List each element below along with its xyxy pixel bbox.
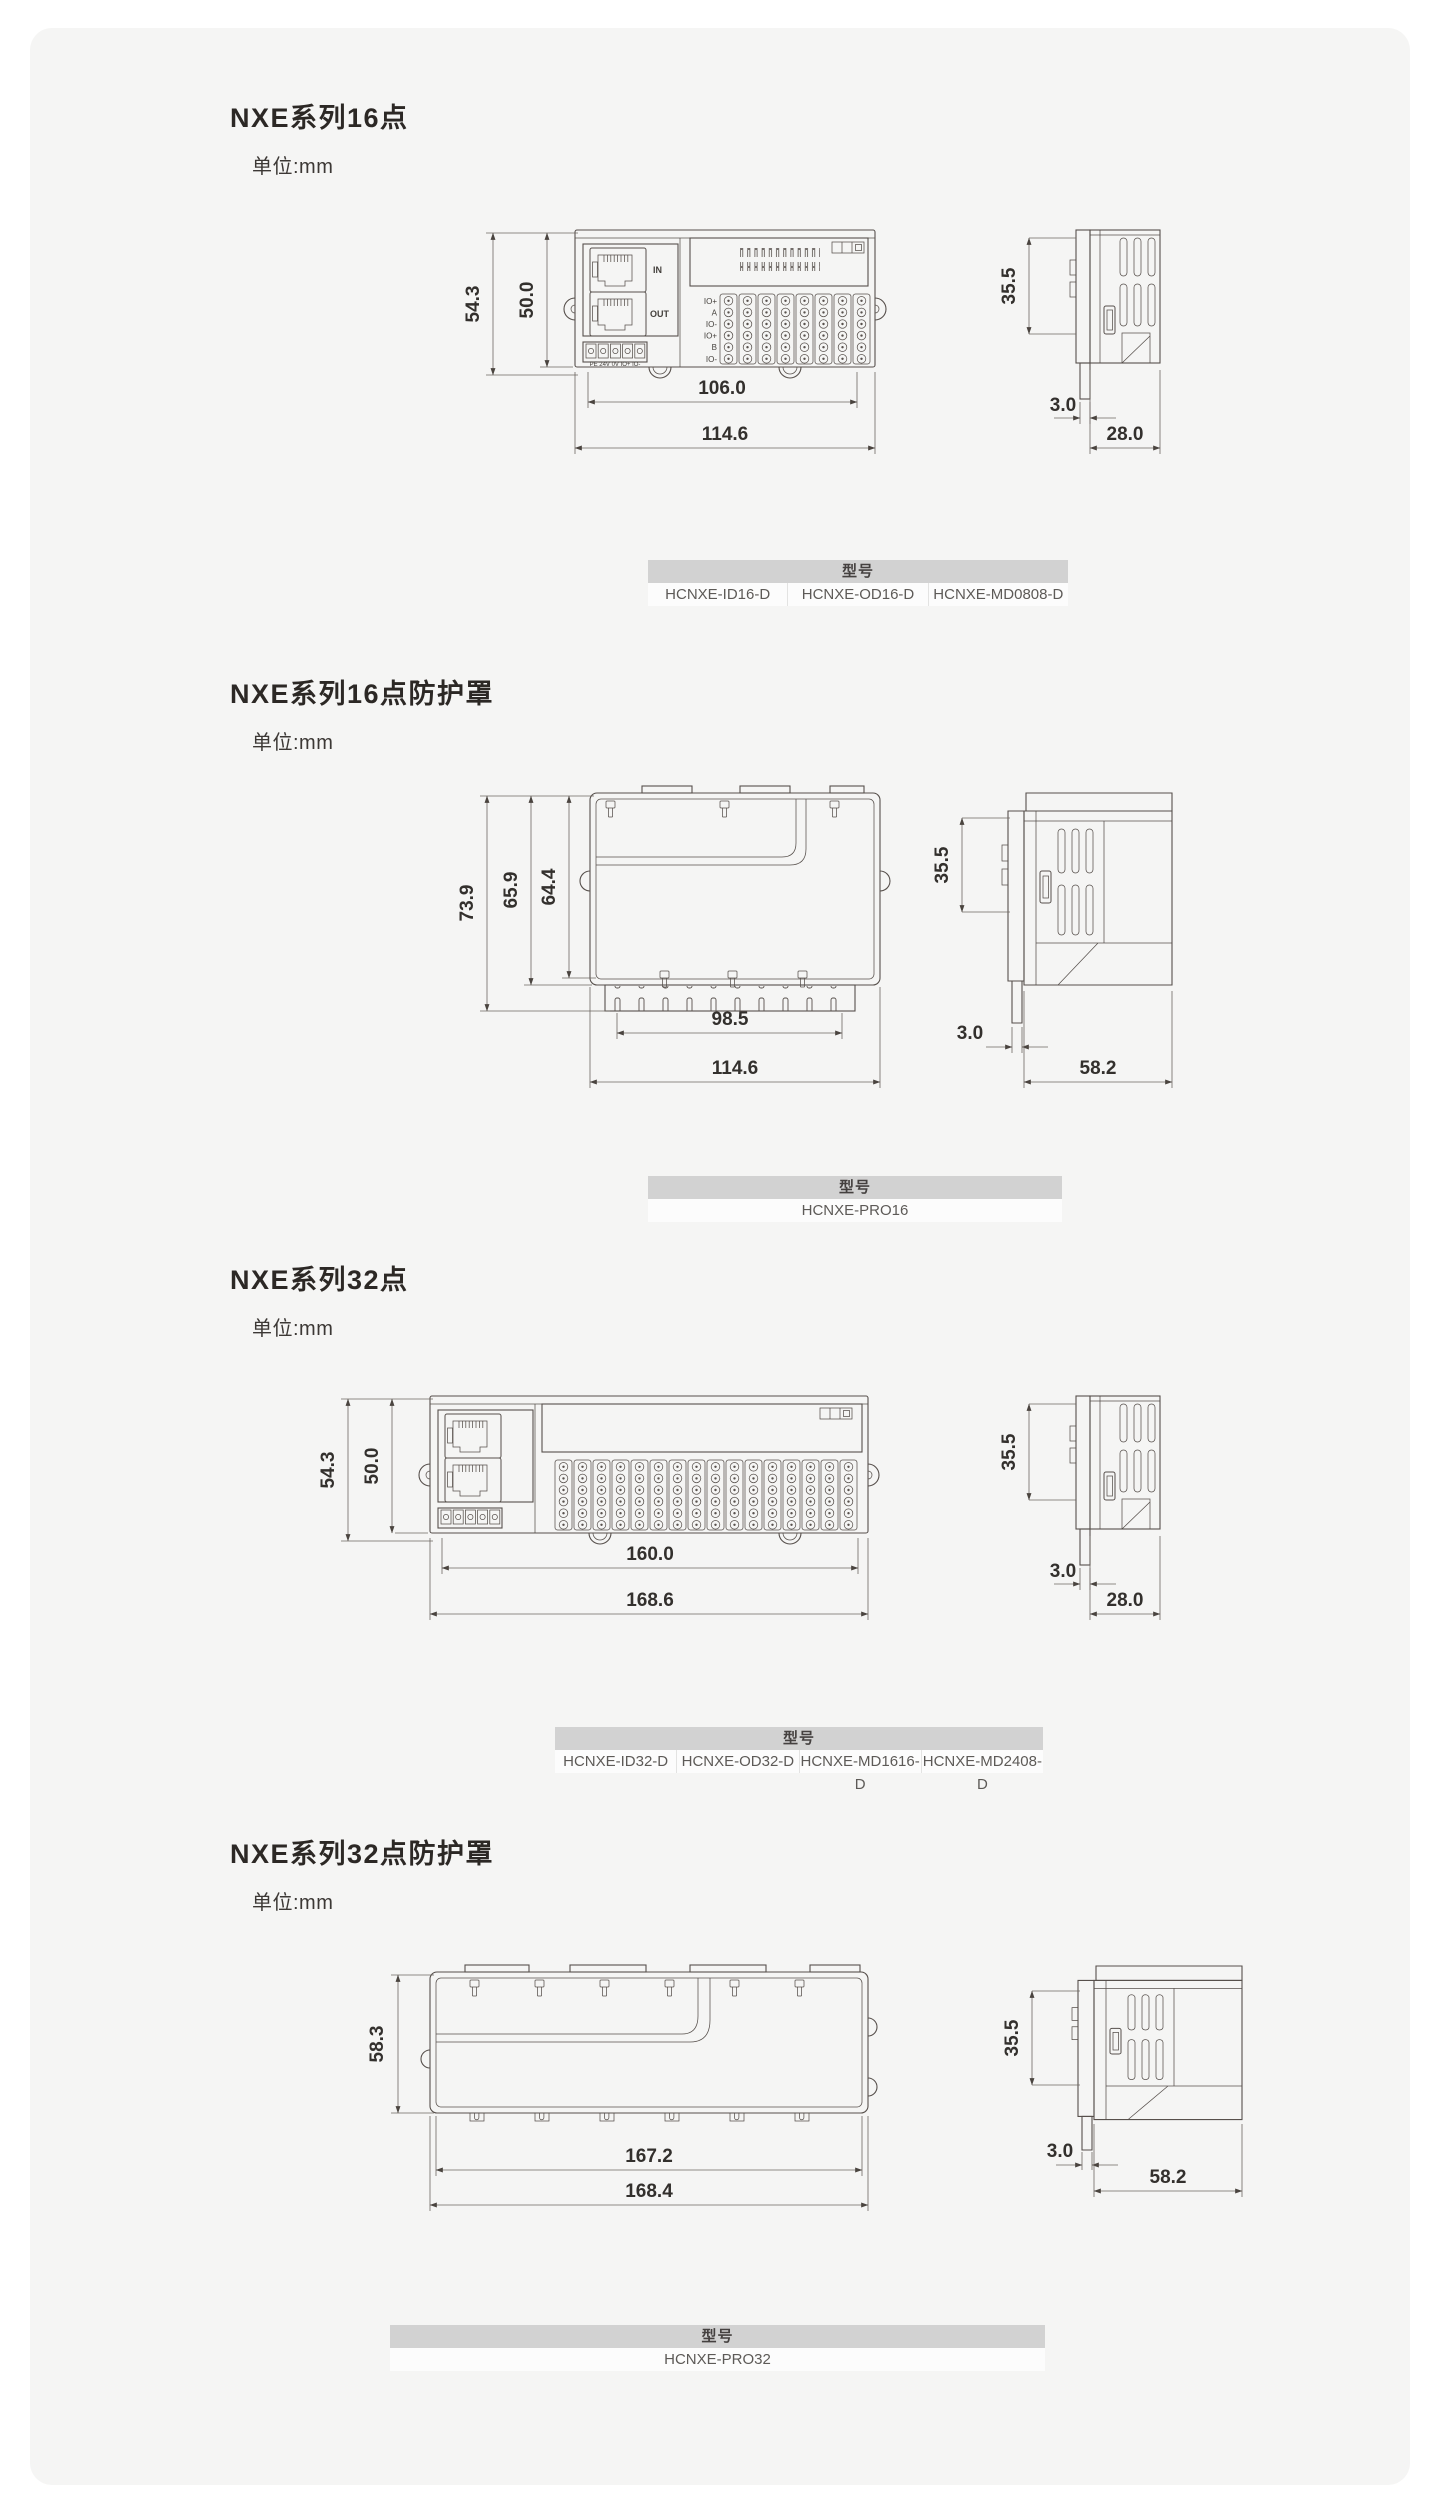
svg-text:IO+: IO+ (704, 297, 717, 306)
section-title-16pt-cover: NXE系列16点防护罩 (230, 672, 494, 711)
unit-label-16pt: 单位:mm (252, 150, 333, 179)
dim-cover-height: 58.3 (367, 2026, 388, 2063)
dimensions-32pt-cover: 58.3 167.2 168.4 35.5 3.0 58.2 (367, 1975, 1242, 2211)
led-row-2 (740, 262, 820, 271)
model-table-32pt: 型号 HCNXE-ID32-D HCNXE-OD32-D HCNXE-MD161… (555, 1727, 1043, 1773)
model-table-32pt-cover: 型号 HCNXE-PRO32 (390, 2325, 1045, 2371)
dim-front-outer-height: 54.3 (463, 286, 484, 323)
model-table-header: 型号 (648, 1176, 1062, 1199)
dim-side-rail-height: 35.5 (932, 846, 953, 883)
dim-side-depth: 28.0 (1107, 1590, 1144, 1611)
dim-cover-mid-height: 65.9 (501, 872, 522, 909)
model-table-16pt-cover: 型号 HCNXE-PRO16 (648, 1176, 1062, 1222)
power-terminal-screws (586, 344, 645, 358)
side-view-16pt-cover (1002, 793, 1172, 1023)
dim-cover-outer-height: 73.9 (457, 885, 478, 922)
port-label-out: OUT (650, 309, 670, 319)
terminal-row-labels: IO+ A IO- IO+ B IO- (704, 297, 718, 364)
model-cell: HCNXE-MD2408-D (921, 1750, 1043, 1773)
model-cell: HCNXE-OD32-D (676, 1750, 798, 1773)
dimension-drawing-16pt: IN OUT PE 24V 0V IO+ IO- IO+ A IO- IO+ B… (270, 222, 1190, 462)
dim-front-inner-height: 50.0 (362, 1448, 383, 1485)
dim-side-depth: 58.2 (1080, 1058, 1117, 1079)
svg-text:A: A (712, 308, 718, 317)
top-connector (832, 242, 864, 253)
section-title-32pt-cover: NXE系列32点防护罩 (230, 1832, 494, 1871)
dim-side-rail-height: 35.5 (999, 1433, 1020, 1470)
dim-side-clip: 3.0 (1047, 2141, 1073, 2162)
side-view-16pt (1070, 230, 1160, 399)
unit-label-16pt-cover: 单位:mm (252, 726, 333, 755)
model-table-header: 型号 (390, 2325, 1045, 2348)
dim-side-depth: 58.2 (1150, 2167, 1187, 2188)
dim-side-rail-height: 35.5 (999, 267, 1020, 304)
dim-front-outer-height: 54.3 (318, 1452, 339, 1489)
dim-front-inner-height: 50.0 (517, 282, 538, 319)
dim-front-inner-width: 160.0 (626, 1544, 674, 1565)
model-cell: HCNXE-MD0808-D (928, 583, 1068, 606)
dim-front-outer-width: 114.6 (702, 424, 749, 445)
svg-text:B: B (712, 343, 717, 352)
dimension-drawing-16pt-cover: 73.9 65.9 64.4 98.5 114.6 35.5 3.0 58.2 (270, 785, 1190, 1105)
front-view-32pt-cover (421, 1965, 877, 2121)
dim-side-depth: 28.0 (1107, 424, 1144, 445)
dimensions-32pt: 54.3 50.0 160.0 168.6 35.5 3.0 28.0 (318, 1399, 1160, 1620)
power-terminal-label: PE 24V 0V IO+ IO- (590, 362, 641, 368)
model-cell: HCNXE-PRO32 (390, 2348, 1045, 2371)
model-table-header: 型号 (555, 1727, 1043, 1750)
model-cell: HCNXE-PRO16 (648, 1199, 1062, 1222)
led-panel (542, 1404, 862, 1452)
dim-cover-inner-width: 98.5 (712, 1009, 749, 1030)
section-title-32pt: NXE系列32点 (230, 1258, 409, 1297)
dim-cover-inner-height: 64.4 (539, 868, 560, 905)
led-row-1 (740, 248, 820, 257)
model-table-16pt: 型号 HCNXE-ID16-D HCNXE-OD16-D HCNXE-MD080… (648, 560, 1068, 606)
dim-side-clip: 3.0 (957, 1023, 983, 1044)
model-cell: HCNXE-ID16-D (648, 583, 787, 606)
model-cell: HCNXE-OD16-D (787, 583, 927, 606)
dim-cover-outer-width: 168.4 (625, 2181, 673, 2202)
dimension-drawing-32pt: 54.3 50.0 160.0 168.6 35.5 3.0 28.0 (270, 1388, 1190, 1628)
svg-text:IO-: IO- (706, 355, 717, 364)
terminal-grid-32pt (555, 1460, 857, 1530)
dim-side-rail-height: 35.5 (1002, 2019, 1023, 2056)
unit-label-32pt: 单位:mm (252, 1312, 333, 1341)
model-cell: HCNXE-MD1616-D (799, 1750, 921, 1773)
unit-label-32pt-cover: 单位:mm (252, 1886, 333, 1915)
top-connector (820, 1408, 852, 1419)
dimension-drawing-32pt-cover: 58.3 167.2 168.4 35.5 3.0 58.2 (270, 1958, 1190, 2218)
dim-side-clip: 3.0 (1050, 1561, 1076, 1582)
model-table-header: 型号 (648, 560, 1068, 583)
port-label-in: IN (653, 265, 662, 275)
front-view-16pt-cover (580, 786, 890, 1011)
svg-text:IO-: IO- (706, 320, 717, 329)
dim-front-outer-width: 168.6 (626, 1590, 674, 1611)
dim-side-clip: 3.0 (1050, 395, 1076, 416)
terminal-grid-16pt (720, 294, 870, 364)
dim-front-inner-width: 106.0 (698, 378, 746, 399)
mounting-ears (419, 1464, 879, 1544)
dim-cover-outer-width: 114.6 (712, 1058, 759, 1079)
dim-cover-inner-width: 167.2 (625, 2146, 673, 2167)
svg-text:IO+: IO+ (704, 332, 717, 341)
model-cell: HCNXE-ID32-D (555, 1750, 676, 1773)
front-view-16pt: IN OUT PE 24V 0V IO+ IO- IO+ A IO- IO+ B… (564, 230, 886, 378)
front-view-32pt (419, 1396, 879, 1544)
side-view-32pt (1070, 1396, 1160, 1565)
power-terminal-screws (441, 1510, 500, 1524)
section-title-16pt: NXE系列16点 (230, 96, 409, 135)
